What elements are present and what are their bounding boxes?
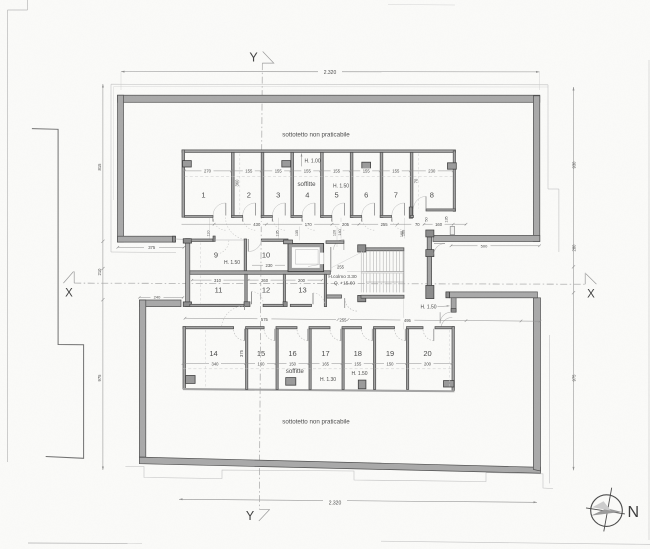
svg-text:270: 270 — [204, 169, 212, 174]
svg-text:8: 8 — [430, 190, 434, 199]
svg-text:150: 150 — [289, 361, 297, 366]
svg-text:2.320: 2.320 — [329, 501, 342, 507]
svg-text:310: 310 — [214, 278, 222, 283]
svg-text:375: 375 — [148, 245, 156, 250]
svg-text:930: 930 — [572, 161, 577, 169]
svg-text:soffitte: soffitte — [297, 181, 316, 188]
svg-text:soffitte: soffitte — [286, 368, 305, 375]
svg-text:15: 15 — [257, 349, 265, 358]
svg-text:155: 155 — [354, 361, 362, 366]
svg-text:19: 19 — [386, 349, 394, 358]
svg-text:70: 70 — [415, 222, 420, 227]
svg-text:70: 70 — [413, 178, 418, 183]
svg-text:230: 230 — [428, 169, 436, 174]
svg-text:H. 1.30: H. 1.30 — [320, 377, 336, 383]
svg-text:155: 155 — [392, 169, 400, 174]
svg-text:20: 20 — [423, 349, 431, 358]
svg-text:150: 150 — [387, 361, 395, 366]
svg-text:160: 160 — [258, 361, 266, 366]
svg-text:H. 1.50: H. 1.50 — [420, 305, 436, 311]
svg-text:X: X — [65, 288, 73, 300]
svg-text:170: 170 — [305, 222, 313, 227]
svg-text:255: 255 — [381, 222, 389, 227]
svg-text:135: 135 — [445, 216, 449, 222]
svg-text:7: 7 — [394, 190, 398, 199]
svg-text:210: 210 — [97, 268, 102, 276]
svg-text:11: 11 — [215, 285, 223, 294]
svg-text:6: 6 — [364, 190, 368, 199]
svg-text:sottotetto non praticabile: sottotetto non praticabile — [282, 419, 350, 426]
svg-text:H. 1.50: H. 1.50 — [224, 260, 240, 266]
svg-text:H. 1.50: H. 1.50 — [351, 371, 367, 377]
svg-text:815: 815 — [97, 163, 102, 171]
svg-text:X: X — [587, 289, 595, 301]
svg-text:155: 155 — [333, 169, 341, 174]
svg-text:375: 375 — [239, 349, 244, 357]
svg-text:H. 1.00: H. 1.00 — [305, 159, 321, 165]
svg-text:575: 575 — [261, 317, 269, 322]
svg-text:260: 260 — [261, 278, 269, 283]
svg-text:5: 5 — [335, 190, 339, 199]
svg-text:16: 16 — [288, 349, 296, 358]
svg-text:205: 205 — [342, 222, 350, 227]
svg-text:975: 975 — [572, 374, 577, 382]
svg-text:Q. +15.60: Q. +15.60 — [334, 281, 356, 287]
svg-text:14: 14 — [209, 349, 217, 358]
svg-text:Y: Y — [246, 509, 255, 523]
svg-text:17: 17 — [321, 349, 329, 358]
svg-text:9: 9 — [214, 250, 218, 259]
svg-text:10: 10 — [262, 250, 270, 259]
svg-text:165: 165 — [322, 361, 330, 366]
svg-text:12: 12 — [262, 285, 270, 294]
svg-text:160: 160 — [435, 222, 443, 227]
svg-text:255: 255 — [337, 264, 345, 269]
svg-text:sottotetto non praticabile: sottotetto non praticabile — [282, 132, 350, 139]
svg-text:2: 2 — [247, 190, 251, 199]
svg-text:360: 360 — [235, 179, 240, 187]
svg-text:110: 110 — [207, 230, 211, 236]
svg-text:155: 155 — [363, 169, 371, 174]
svg-text:160: 160 — [400, 231, 404, 237]
svg-text:13: 13 — [298, 285, 306, 294]
svg-text:50: 50 — [425, 217, 429, 221]
svg-text:4: 4 — [305, 190, 309, 199]
svg-text:975: 975 — [97, 374, 102, 382]
svg-text:495: 495 — [404, 318, 412, 323]
svg-text:N: N — [628, 504, 640, 521]
svg-text:340: 340 — [212, 361, 220, 366]
svg-text:3: 3 — [276, 190, 280, 199]
svg-text:140: 140 — [338, 229, 342, 235]
svg-text:230: 230 — [266, 263, 274, 268]
svg-text:135: 135 — [276, 230, 280, 236]
svg-text:135: 135 — [295, 230, 299, 236]
svg-text:155: 155 — [275, 169, 283, 174]
svg-text:18: 18 — [354, 349, 362, 358]
svg-text:120: 120 — [332, 230, 336, 236]
svg-text:H. 1.50: H. 1.50 — [333, 184, 349, 190]
svg-text:200: 200 — [298, 278, 306, 283]
svg-text:2.320: 2.320 — [324, 70, 337, 76]
svg-text:240: 240 — [154, 294, 161, 299]
svg-text:1: 1 — [201, 190, 205, 199]
svg-text:255: 255 — [340, 317, 348, 322]
svg-text:155: 155 — [304, 169, 312, 174]
svg-text:500: 500 — [481, 243, 488, 248]
svg-text:200: 200 — [424, 361, 432, 366]
svg-text:H.colmo 3.30: H.colmo 3.30 — [328, 274, 357, 280]
svg-text:Y: Y — [249, 51, 258, 65]
svg-text:280: 280 — [572, 244, 577, 252]
svg-text:430: 430 — [253, 222, 261, 227]
svg-text:155: 155 — [245, 169, 253, 174]
